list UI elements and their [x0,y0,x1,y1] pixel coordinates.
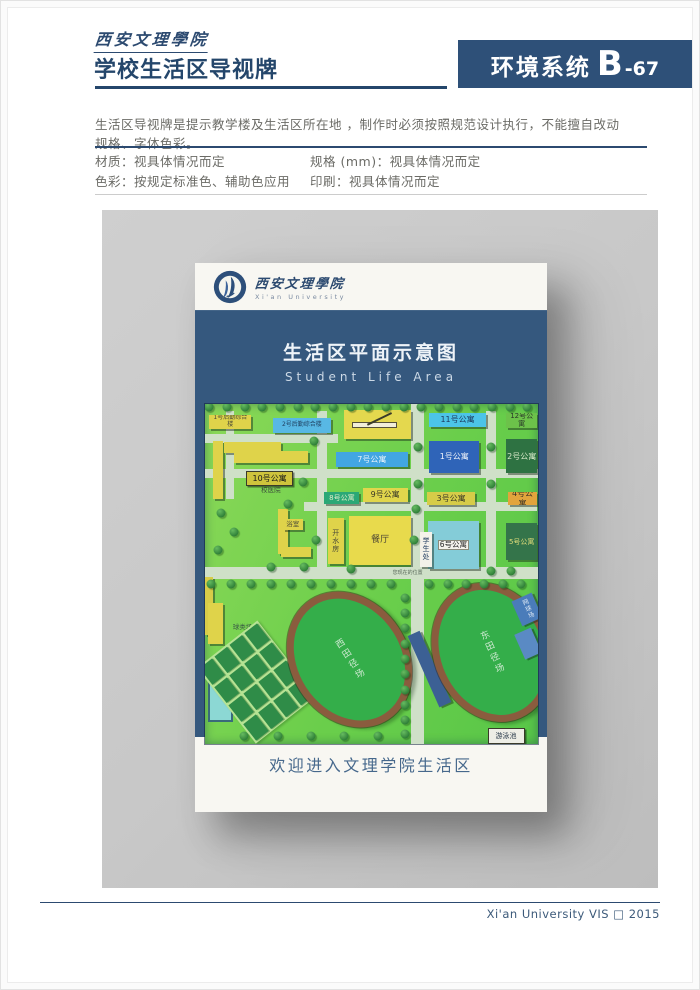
map-building: 11号公寓 [429,413,486,427]
brand-calligraphy: 西安文理學院 [94,26,211,53]
map-label: 6号公寓 [438,540,469,551]
tree-icon [417,404,426,411]
tree-icon [367,579,376,588]
tree-icon [298,478,307,487]
tree-icon [312,536,321,545]
map-building [234,451,307,463]
tree-icon [401,593,410,602]
tree-icon [401,670,410,679]
map-label: 5号公寓 [508,538,535,546]
tree-icon [401,655,410,664]
map-label: 7号公寓 [356,455,387,464]
tree-icon [267,579,276,588]
footer-rule [40,902,660,903]
map-label: 学生处 [421,537,431,561]
map-building: 8号公寓 [324,492,359,504]
map-label: 12号公寓 [506,413,538,429]
map-building: 1号后勤综合楼 [209,415,251,429]
gate-bar [352,422,397,428]
map-building [208,603,223,644]
tree-icon [373,731,382,740]
map-building [281,547,311,557]
map-building: 9号公寓 [363,488,408,502]
spec-table: 材质：视具体情况而定 规格 (mm)：视具体情况而定 色彩：按规定标准色、辅助色… [95,152,647,192]
map-building: 开水房 [328,518,344,564]
map-building: 2号后勤综合楼 [273,418,331,433]
map-label: 3号公寓 [436,494,467,503]
tree-icon [267,563,276,572]
tree-icon [276,404,285,411]
tree-icon [401,609,410,618]
map-label: 8号公寓 [328,494,355,502]
spec-color: 色彩：按规定标准色、辅助色应用 [95,172,310,192]
tree-icon [486,479,495,488]
map-label: 1号公寓 [439,452,470,461]
tree-icon [293,404,302,411]
tree-icon [470,404,479,411]
map-building: 6号公寓 [428,521,480,569]
tree-icon [240,404,249,411]
spec-material: 材质：视具体情况而定 [95,152,310,172]
map-road [486,411,496,567]
tree-icon [217,508,226,517]
spec-size: 规格 (mm)：视具体情况而定 [310,152,647,172]
map-building: 餐厅 [349,516,411,565]
map-label: 4号公寓 [508,492,538,504]
tree-icon [401,624,410,633]
divider-navy [95,146,647,148]
map-label: 网球场 [518,598,535,621]
tree-icon [329,404,338,411]
tree-icon [401,716,410,725]
sign-logo-en: Xi'an University [255,293,346,301]
tree-icon [486,442,495,451]
tree-icon [230,527,239,536]
tree-icon [498,579,507,588]
display-stage: 西安文理學院 Xi'an University 生活区平面示意图 Student… [102,210,658,888]
map-building: 2号公寓 [506,439,538,473]
map-building: 学生处 [420,532,433,568]
tree-icon [410,536,419,545]
tree-icon [347,579,356,588]
tree-icon [461,579,470,588]
code-system-label: 环境系统 [491,44,591,92]
map-label: 2号后勤综合楼 [281,422,323,429]
tree-icon [486,566,495,575]
map-building: 3号公寓 [427,492,475,504]
code-letter: B [597,40,623,88]
vis-manual-page: { "page": { "brand_calligraphy": "西安文理學院… [0,0,700,990]
sign-blue-panel: 生活区平面示意图 Student Life Area 您现在的位置1号后勤综合楼… [195,310,547,737]
sign-board: 西安文理學院 Xi'an University 生活区平面示意图 Student… [195,263,547,812]
tree-icon [506,566,515,575]
tree-icon [307,579,316,588]
map-building: 浴室 [283,519,303,531]
map-label: 开水房 [331,529,341,553]
tree-icon [327,579,336,588]
tree-icon [307,731,316,740]
tree-icon [505,404,514,411]
tree-icon [273,731,282,740]
map-label: 餐厅 [370,535,390,545]
sign-logo-cn: 西安文理學院 [254,273,347,292]
tree-icon [401,700,410,709]
tree-icon [287,579,296,588]
map-building [344,410,411,439]
tree-icon [401,729,410,738]
tree-icon [247,579,256,588]
university-emblem-icon [213,270,247,304]
map-label: 西田径场 [331,636,368,683]
tree-icon [386,579,395,588]
tree-icon [401,685,410,694]
tree-icon [480,579,489,588]
tree-icon [340,731,349,740]
map-label: 东田径场 [476,628,507,677]
tree-icon [443,579,452,588]
map-building: 1号公寓 [429,441,479,474]
spec-print: 印刷：视具体情况而定 [310,172,647,192]
tree-icon [300,563,309,572]
map-label: 2号公寓 [506,452,537,461]
map-building: 游泳池 [488,728,525,744]
map-label: 游泳池 [495,732,518,740]
tree-icon [425,579,434,588]
tree-icon [523,404,532,411]
map-building [213,441,223,499]
map-building: 7号公寓 [336,452,408,467]
map-label: 10号公寓 [252,474,288,483]
page-title: 学校生活区导视牌 [94,52,278,84]
section-code-box: 环境系统 B -67 [458,40,692,88]
tree-icon [516,579,525,588]
campus-map: 您现在的位置1号后勤综合楼2号后勤综合楼11号公寓12号公寓7号公寓1号公寓2号… [205,404,538,744]
map-label: 1号后勤综合楼 [209,415,251,429]
map-label: 浴室 [285,521,300,528]
tree-icon [413,442,422,451]
tree-icon [258,404,267,411]
map-label: 9号公寓 [370,490,401,499]
tree-icon [227,579,236,588]
tree-icon [207,579,216,588]
tree-icon [434,404,443,411]
welcome-text: 欢迎进入文理学院生活区 [269,752,473,812]
code-number: -67 [625,45,659,93]
tree-icon [205,404,214,411]
tree-icon [347,564,356,573]
tree-icon [283,500,292,509]
footer-credit: Xi'an University VIS □ 2015 [360,907,660,921]
tree-icon [240,731,249,740]
tree-icon [310,437,319,446]
sign-logo-text: 西安文理學院 Xi'an University [255,273,346,301]
sign-header: 西安文理學院 Xi'an University [195,263,547,310]
map-label: 11号公寓 [439,415,475,424]
tree-icon [411,505,420,514]
map-building: 5号公寓 [506,523,538,560]
tree-icon [452,404,461,411]
tree-icon [401,639,410,648]
map-subtitle: Student Life Area [195,370,547,384]
map-label: 您现在的位置 [393,569,440,578]
map-building: 12号公寓 [506,413,538,429]
map-label: 校医院 [261,484,294,493]
map-title: 生活区平面示意图 [195,310,547,365]
title-rule [95,86,447,89]
map-building: 4号公寓 [508,492,538,504]
divider-light [95,194,647,195]
sign-footer: 欢迎进入文理学院生活区 [195,737,547,812]
tree-icon [413,479,422,488]
tree-icon [213,546,222,555]
